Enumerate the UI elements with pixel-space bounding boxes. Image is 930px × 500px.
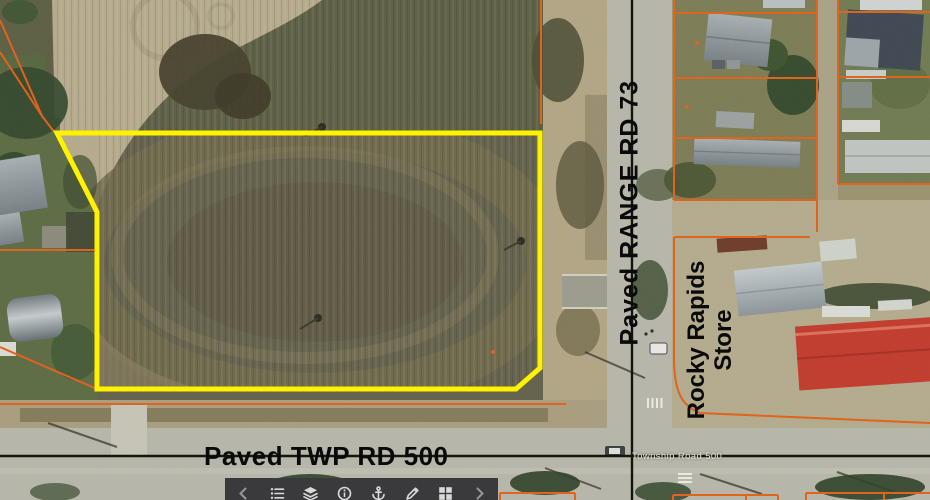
toolbar-sketch-button[interactable] [399, 482, 426, 500]
toolbar-legend-button[interactable] [264, 482, 291, 500]
sketch-icon [405, 486, 420, 500]
info-icon [337, 486, 352, 500]
toolbar-anchor-button[interactable] [365, 482, 392, 500]
label-store-name: Rocky Rapids Store [683, 240, 737, 440]
toolbar-info-button[interactable] [331, 482, 358, 500]
layers-icon [303, 486, 318, 500]
map-toolbar [225, 478, 498, 500]
label-store-line1: Rocky Rapids [683, 240, 710, 440]
label-store-line2: Store [710, 240, 737, 440]
map-canvas[interactable]: Paved RANGE RD 73 Rocky Rapids Store Pav… [0, 0, 930, 500]
label-range-road: Paved RANGE RD 73 [616, 96, 645, 346]
anchor-icon [371, 486, 386, 500]
toolbar-basemap-button[interactable] [432, 482, 459, 500]
basemap-grid-icon [438, 486, 453, 500]
chevron-left-icon [236, 486, 251, 500]
legend-list-icon [270, 486, 285, 500]
toolbar-prev-button[interactable] [230, 482, 257, 500]
chevron-right-icon [472, 486, 487, 500]
toolbar-next-button[interactable] [466, 482, 493, 500]
aerial-imagery [0, 0, 930, 500]
label-township-road-small: Township Road 500 [632, 451, 722, 462]
label-twp-road: Paved TWP RD 500 [204, 441, 449, 472]
toolbar-layers-button[interactable] [297, 482, 324, 500]
